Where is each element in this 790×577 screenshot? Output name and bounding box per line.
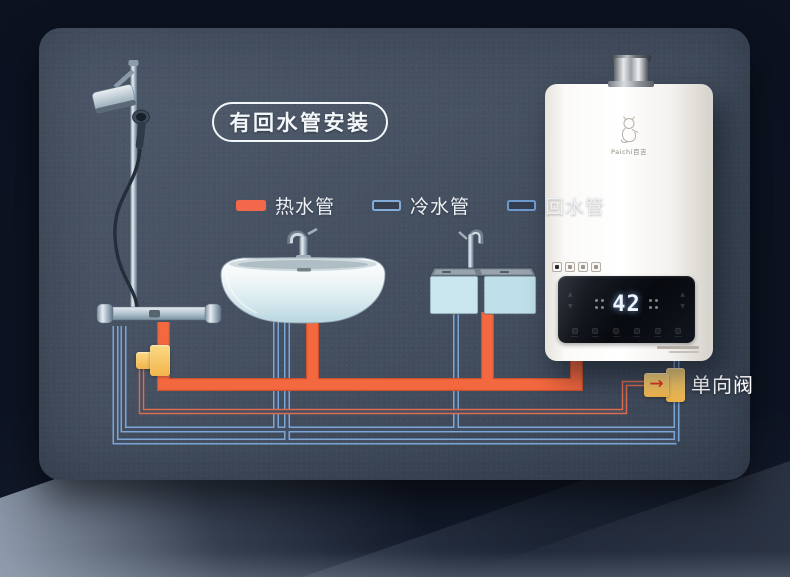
cold-pipe-swatch-icon xyxy=(372,200,401,211)
basin-fixture xyxy=(213,228,393,328)
legend-item-cold: 冷水管 xyxy=(372,192,470,219)
temperature-value: 42 xyxy=(612,292,641,317)
touch-icon[interactable] xyxy=(675,328,682,338)
flow-arrow-icon: → xyxy=(649,376,663,393)
legend-label: 热水管 xyxy=(275,192,335,219)
water-heater: Paichi百吉 ▲▼ ▲▼ 42 xyxy=(545,84,713,361)
brand-mascot-icon xyxy=(616,116,642,144)
display-dots-left xyxy=(595,299,605,309)
return-pipe-swatch-icon xyxy=(507,200,536,211)
sink-faucet xyxy=(459,232,481,273)
shower-head xyxy=(92,84,137,114)
background-floor-glow xyxy=(0,551,790,577)
one-way-valve: → xyxy=(644,373,669,397)
touch-icon-strip[interactable] xyxy=(571,328,682,338)
heater-button-power[interactable] xyxy=(552,262,562,272)
legend-label: 冷水管 xyxy=(410,192,470,219)
control-panel: ▲▼ ▲▼ 42 xyxy=(558,276,695,343)
sink-fixture xyxy=(418,224,543,324)
legend-item-hot: 热水管 xyxy=(236,192,335,219)
touch-icon[interactable] xyxy=(633,328,640,338)
shower-fixture xyxy=(85,55,225,340)
pipe-legend: 热水管 冷水管 回水管 xyxy=(236,192,642,219)
product-infographic: → 单向阀 xyxy=(0,0,790,577)
heater-button-2[interactable] xyxy=(565,262,575,272)
valve-label: 单向阀 xyxy=(691,369,754,398)
heater-button-4[interactable] xyxy=(591,262,601,272)
touch-icon[interactable] xyxy=(571,328,578,338)
heater-buttons xyxy=(552,262,601,272)
basin-faucet xyxy=(290,229,317,259)
brand-logo: Paichi百吉 xyxy=(545,116,713,156)
title-badge: 有回水管安装 xyxy=(212,102,388,142)
flue-collar xyxy=(608,81,654,87)
touch-icon[interactable] xyxy=(592,328,599,338)
touch-icon[interactable] xyxy=(654,328,661,338)
temp-up-down-icons[interactable]: ▲▼ xyxy=(568,292,573,310)
overflow-slot xyxy=(297,268,311,272)
model-text xyxy=(657,346,699,353)
hot-pipe-swatch-icon xyxy=(236,200,266,211)
legend-item-return: 回水管 xyxy=(507,192,605,219)
touch-icon[interactable] xyxy=(613,328,620,338)
shower-mixer-bar xyxy=(97,304,221,323)
temperature-display: 42 xyxy=(558,289,695,319)
basin-bowl xyxy=(221,257,385,323)
sink-body xyxy=(430,268,536,314)
brand-name: Paichi百吉 xyxy=(611,146,647,156)
shower-arm xyxy=(115,71,133,87)
temp-up-down-icons[interactable]: ▲▼ xyxy=(680,292,685,310)
display-dots-right xyxy=(649,299,659,309)
heater-button-3[interactable] xyxy=(578,262,588,272)
shower-tee-valve xyxy=(150,345,170,376)
legend-label: 回水管 xyxy=(545,192,605,219)
